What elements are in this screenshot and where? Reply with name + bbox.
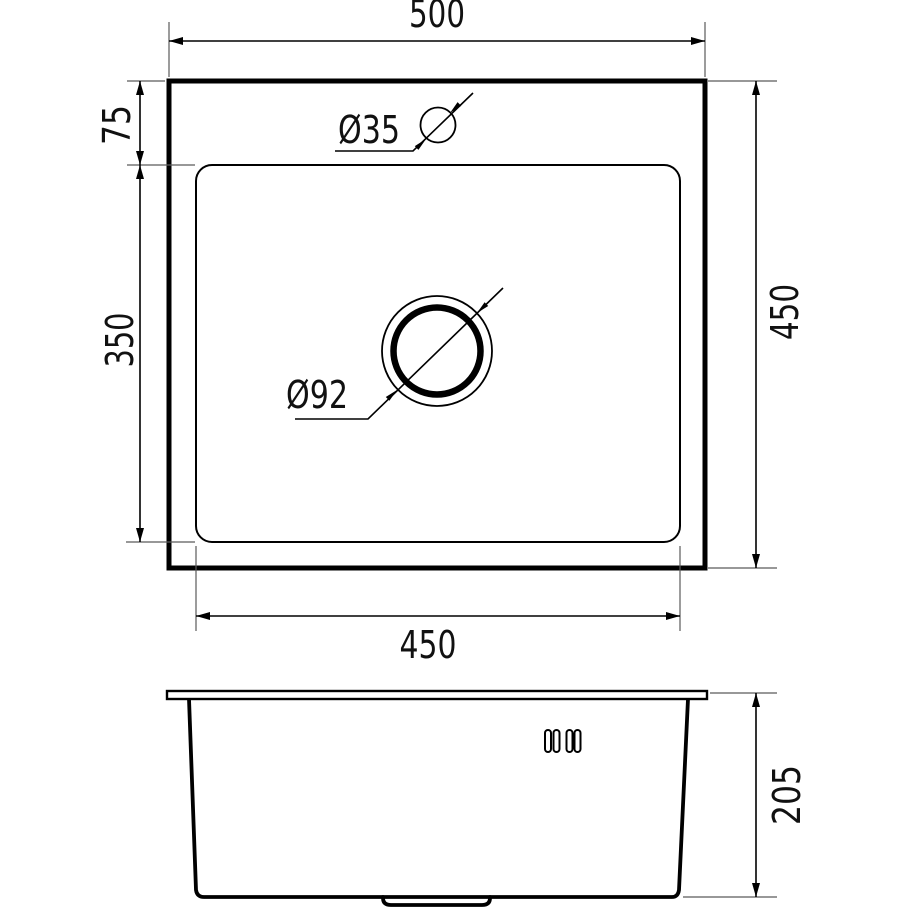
dim-label-overall-width: 500 (409, 0, 465, 36)
dim-overall-depth: 450 (708, 81, 807, 568)
dim-label-bowl-depth: 350 (98, 313, 142, 368)
overflow-slot (545, 730, 551, 752)
arrowhead (136, 528, 144, 542)
side-rim (167, 691, 707, 699)
arrowhead (136, 151, 144, 165)
arrowhead (196, 612, 210, 620)
dim-label-overall-depth: 450 (763, 284, 807, 340)
arrowhead (136, 81, 144, 95)
arrowhead (752, 554, 760, 568)
sink-outer-rect (169, 81, 705, 568)
arrowhead (136, 165, 144, 179)
side-view: 205 (167, 691, 809, 905)
overflow-slot (575, 730, 581, 752)
dim-overall-width: 500 (169, 0, 705, 77)
arrowhead (691, 37, 705, 45)
dim-label-drain-hole: Ø92 (286, 373, 348, 417)
arrowhead (752, 693, 760, 707)
dim-bowl-depth: 350 (98, 165, 195, 542)
sink-bowl-rect (196, 165, 680, 542)
technical-drawing-canvas: Ø35 Ø92 500 75 (0, 0, 908, 908)
sink-drawing-svg: Ø35 Ø92 500 75 (0, 0, 908, 908)
arrowhead (752, 81, 760, 95)
arrowhead (169, 37, 183, 45)
dim-faucet-offset: 75 (95, 81, 195, 165)
top-view: Ø35 Ø92 500 75 (95, 0, 807, 667)
arrowhead (666, 612, 680, 620)
dim-overall-height: 205 (683, 693, 809, 897)
overflow-slots (545, 730, 581, 752)
dim-label-overall-height: 205 (765, 765, 809, 825)
faucet-diameter-leader: Ø35 (335, 93, 473, 152)
arrowhead (752, 883, 760, 897)
dim-label-faucet-hole: Ø35 (338, 108, 400, 152)
dim-label-faucet-offset: 75 (95, 105, 139, 145)
overflow-slot (567, 730, 573, 752)
dim-bowl-width: 450 (196, 546, 680, 667)
overflow-slot (554, 730, 560, 752)
dim-label-bowl-width: 450 (400, 623, 457, 667)
side-bowl-outline (189, 699, 688, 897)
arrowhead (450, 102, 461, 113)
